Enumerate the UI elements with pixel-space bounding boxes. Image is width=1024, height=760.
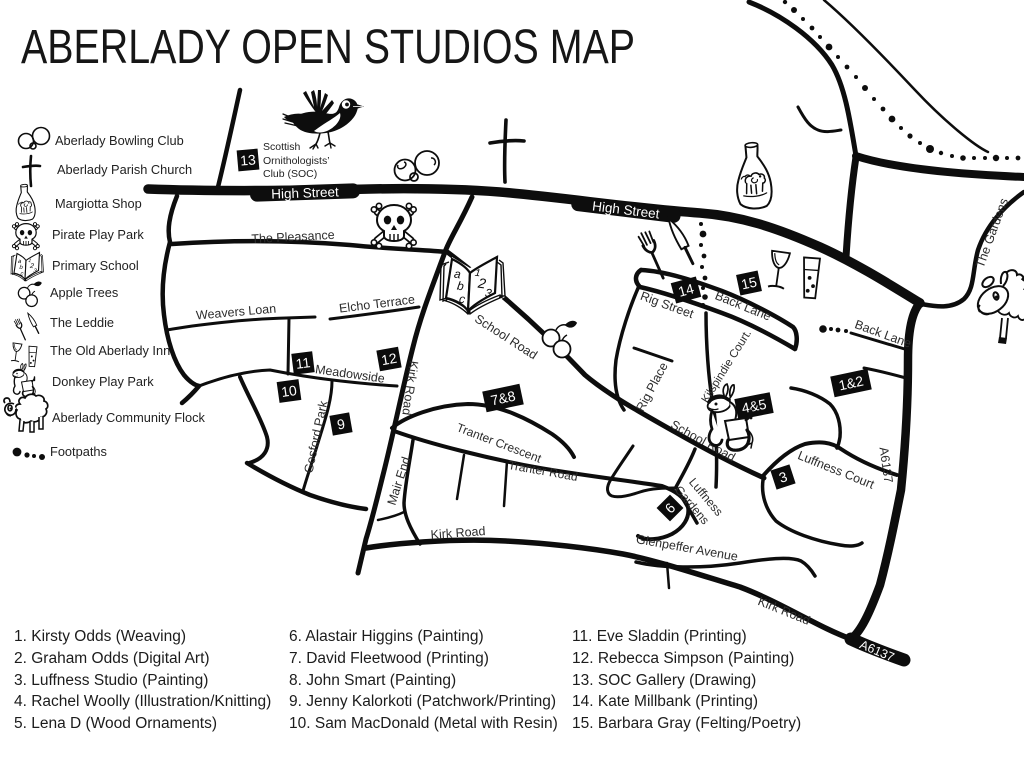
svg-text:Ornithologists’: Ornithologists’ <box>263 155 330 167</box>
svg-text:The Leddie: The Leddie <box>50 315 114 330</box>
svg-text:Primary School: Primary School <box>52 258 139 273</box>
svg-text:5. Lena D (Wood Ornaments): 5. Lena D (Wood Ornaments) <box>14 715 217 732</box>
svg-text:14. Kate Millbank (Printing): 14. Kate Millbank (Printing) <box>572 693 758 710</box>
svg-text:11. Eve Sladdin (Printing): 11. Eve Sladdin (Printing) <box>572 628 747 645</box>
svg-text:12. Rebecca Simpson (Painting): 12. Rebecca Simpson (Painting) <box>572 650 794 667</box>
svg-text:8. John Smart (Painting): 8. John Smart (Painting) <box>289 672 456 689</box>
svg-text:13. SOC Gallery (Drawing): 13. SOC Gallery (Drawing) <box>572 672 756 689</box>
svg-text:Aberlady Bowling Club: Aberlady Bowling Club <box>55 133 184 148</box>
svg-text:9. Jenny Kalorkoti (Patchwork/: 9. Jenny Kalorkoti (Patchwork/Printing) <box>289 693 556 710</box>
svg-text:7. David Fleetwood (Printing): 7. David Fleetwood (Printing) <box>289 650 489 667</box>
svg-text:13: 13 <box>240 151 257 168</box>
svg-text:1. Kirsty Odds (Weaving): 1. Kirsty Odds (Weaving) <box>14 628 186 645</box>
svg-text:11: 11 <box>295 354 312 372</box>
svg-text:The Old Aberlady Inn: The Old Aberlady Inn <box>50 343 170 358</box>
svg-text:Apple Trees: Apple Trees <box>50 285 118 300</box>
svg-text:Club (SOC): Club (SOC) <box>263 168 317 180</box>
svg-text:Aberlady Community Flock: Aberlady Community Flock <box>52 410 206 425</box>
svg-text:2. Graham Odds (Digital Art): 2. Graham Odds (Digital Art) <box>14 650 210 667</box>
svg-text:15. Barbara Gray (Felting/Poet: 15. Barbara Gray (Felting/Poetry) <box>572 715 801 732</box>
svg-text:Donkey Play Park: Donkey Play Park <box>52 374 154 389</box>
svg-text:3. Luffness Studio (Painting): 3. Luffness Studio (Painting) <box>14 672 208 689</box>
svg-text:Pirate Play Park: Pirate Play Park <box>52 227 144 242</box>
svg-text:High Street: High Street <box>271 184 339 201</box>
svg-text:Scottish: Scottish <box>263 141 301 153</box>
svg-text:6. Alastair Higgins (Painting): 6. Alastair Higgins (Painting) <box>289 628 484 645</box>
svg-text:Footpaths: Footpaths <box>50 444 107 459</box>
svg-text:10. Sam MacDonald (Metal with: 10. Sam MacDonald (Metal with Resin) <box>289 715 558 732</box>
svg-text:12: 12 <box>380 350 398 368</box>
svg-text:10: 10 <box>280 382 298 400</box>
svg-text:Margiotta Shop: Margiotta Shop <box>55 196 142 211</box>
svg-text:4. Rachel Woolly (Illustration: 4. Rachel Woolly (Illustration/Knitting) <box>14 693 271 710</box>
svg-text:Aberlady Parish Church: Aberlady Parish Church <box>57 162 192 177</box>
svg-text:ABERLADY OPEN STUDIOS MAP: ABERLADY OPEN STUDIOS MAP <box>21 21 635 74</box>
